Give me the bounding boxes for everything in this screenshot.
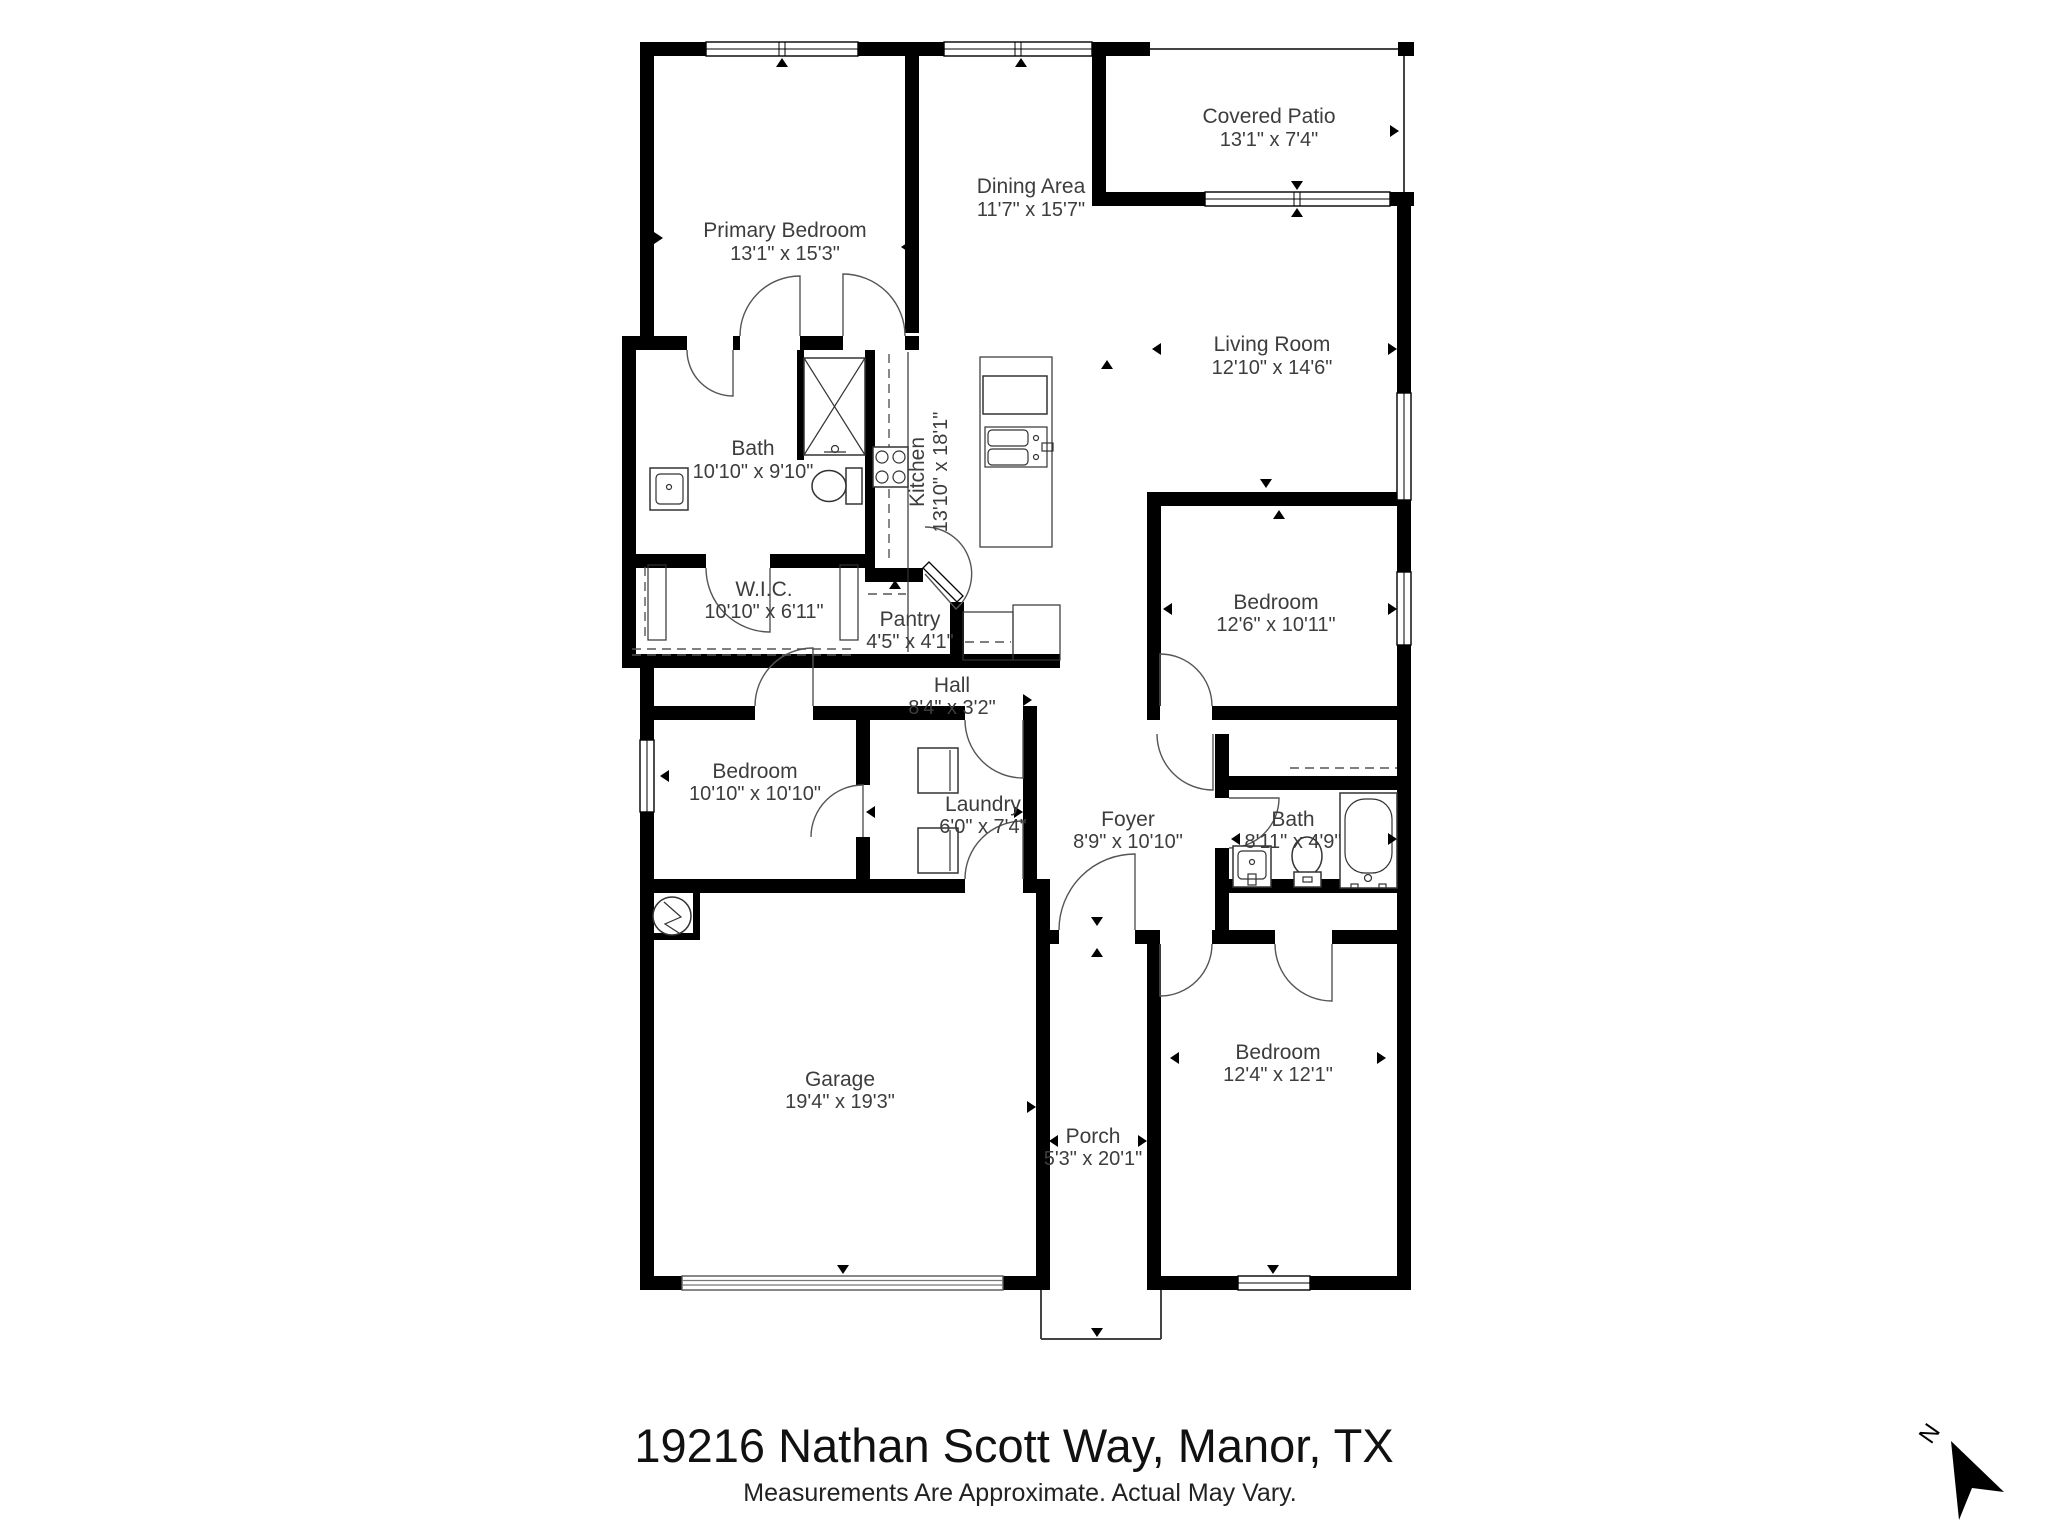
room-label-bedroom-4: Bedroom <box>1235 1041 1320 1064</box>
disclaimer-text: Measurements Are Approximate. Actual May… <box>743 1479 1296 1507</box>
dimension-tick <box>1023 694 1032 706</box>
window-primary-bedroom <box>706 42 858 56</box>
dimension-tick <box>1291 208 1303 217</box>
room-label-hall: Hall <box>934 674 970 697</box>
dimension-tick <box>1390 125 1399 137</box>
dimension-tick <box>1377 1052 1386 1064</box>
room-label-porch: Porch <box>1066 1125 1121 1148</box>
dimension-tick <box>1091 948 1103 957</box>
dimension-tick <box>1163 603 1172 615</box>
room-dims-covered-patio: 13'1" x 7'4" <box>1220 129 1319 151</box>
dimension-tick <box>1049 1135 1058 1147</box>
door-primary-bedroom-2 <box>843 274 905 336</box>
room-label-primary-bedroom: Primary Bedroom <box>703 219 866 242</box>
north-label: N <box>1914 1419 1946 1449</box>
room-dims-bath-primary: 10'10" x 9'10" <box>693 461 814 483</box>
room-dims-laundry: 6'0" x 7'4" <box>939 816 1026 838</box>
room-dims-primary-bedroom: 13'1" x 15'3" <box>730 243 840 265</box>
room-label-bath-hall: Bath <box>1271 808 1314 831</box>
dimension-tick <box>1388 343 1397 355</box>
window-living <box>1397 393 1411 500</box>
room-label-bath-primary: Bath <box>731 437 774 460</box>
floor-plan-svg: Primary Bedroom 13'1" x 15'3" Dining Are… <box>0 0 2048 1536</box>
door-bedroom4-closet <box>1275 944 1332 1001</box>
room-label-laundry: Laundry <box>945 793 1021 816</box>
room-dims-pantry: 4'5" x 4'1" <box>866 631 953 653</box>
room-label-wic: W.I.C. <box>735 578 792 601</box>
dimension-tick <box>1091 917 1103 926</box>
floor-plan-page: Primary Bedroom 13'1" x 15'3" Dining Are… <box>0 0 2048 1536</box>
room-dims-bath-hall: 8'11" x 4'9" <box>1244 831 1341 853</box>
room-dims-bedroom-4: 12'4" x 12'1" <box>1223 1064 1333 1086</box>
dimension-tick <box>1260 479 1272 488</box>
dimension-tick <box>1170 1052 1179 1064</box>
room-dims-hall: 8'4" x 3'2" <box>908 697 995 719</box>
footer: 19216 Nathan Scott Way, Manor, TX Measur… <box>634 1419 1393 1507</box>
north-arrow: N <box>1914 1419 2004 1520</box>
dimension-tick <box>1027 1101 1036 1113</box>
door-primary-bedroom-1 <box>740 276 800 336</box>
room-dims-porch: 5'3" x 20'1" <box>1044 1148 1143 1170</box>
room-label-living-room: Living Room <box>1214 333 1331 356</box>
water-heater-icon <box>653 897 691 935</box>
room-dims-garage: 19'4" x 19'3" <box>785 1091 895 1113</box>
window-bedroom2 <box>1397 572 1411 645</box>
door-bedroom4 <box>1160 944 1212 996</box>
dimension-tick <box>654 232 663 244</box>
window-patio <box>1205 192 1390 206</box>
room-dims-foyer: 8'9" x 10'10" <box>1073 831 1183 853</box>
room-label-foyer: Foyer <box>1101 808 1155 831</box>
kitchen-island <box>980 357 1053 547</box>
dimension-tick <box>1015 58 1027 67</box>
door-bedroom2-closet <box>1157 734 1213 790</box>
room-label-pantry: Pantry <box>880 608 941 631</box>
dimension-tick <box>776 58 788 67</box>
door-laundry-hall <box>965 720 1023 778</box>
room-label-garage: Garage <box>805 1068 875 1091</box>
window-dining <box>944 42 1092 56</box>
shower-icon <box>804 358 865 455</box>
room-label-dining-area: Dining Area <box>977 175 1086 198</box>
room-dims-living-room: 12'10" x 14'6" <box>1212 357 1333 379</box>
room-label-bedroom-3: Bedroom <box>712 760 797 783</box>
dimension-tick <box>1138 1135 1147 1147</box>
stove-icon <box>873 447 908 487</box>
sink-icon <box>650 468 688 510</box>
address-title: 19216 Nathan Scott Way, Manor, TX <box>634 1419 1393 1472</box>
dimension-tick <box>1231 833 1240 845</box>
room-label-kitchen-group: Kitchen 13'10" x 18'1" <box>906 412 952 533</box>
north-arrow-icon <box>1951 1441 2004 1520</box>
dimension-tick <box>837 1265 849 1274</box>
room-dims-kitchen: 13'10" x 18'1" <box>930 412 952 533</box>
room-label-bedroom-2: Bedroom <box>1233 591 1318 614</box>
toilet-icon <box>812 468 862 504</box>
garage-door <box>682 1276 1003 1290</box>
room-dims-bedroom-3: 10'10" x 10'10" <box>689 783 821 805</box>
dimension-tick <box>1388 603 1397 615</box>
dimension-tick <box>1273 510 1285 519</box>
dimension-tick <box>1091 1328 1103 1337</box>
room-labels: Primary Bedroom 13'1" x 15'3" Dining Are… <box>689 105 1342 1170</box>
dimension-tick <box>1291 181 1303 190</box>
dimension-tick <box>1267 1265 1279 1274</box>
washer-icon <box>918 748 958 793</box>
room-dims-bedroom-2: 12'6" x 10'11" <box>1216 614 1335 636</box>
dimension-tick <box>1101 360 1113 369</box>
dimension-tick <box>660 770 669 782</box>
door-primary-bath <box>687 350 733 396</box>
window-bedroom4 <box>1238 1276 1310 1290</box>
door-bedroom2 <box>1160 654 1212 706</box>
dimension-tick <box>1152 343 1161 355</box>
room-label-kitchen: Kitchen <box>906 437 929 507</box>
room-dims-dining-area: 11'7" x 15'7" <box>977 199 1085 221</box>
room-label-covered-patio: Covered Patio <box>1202 105 1335 128</box>
room-dims-wic: 10'10" x 6'11" <box>704 601 823 623</box>
window-bedroom3 <box>640 740 654 812</box>
